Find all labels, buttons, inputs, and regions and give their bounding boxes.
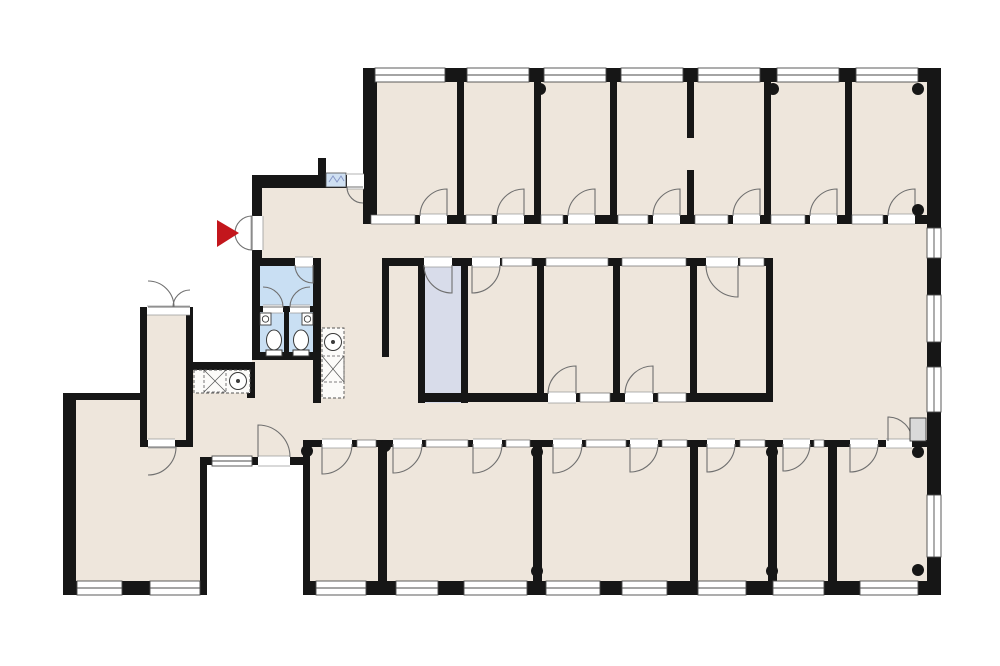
wall — [382, 262, 389, 357]
wall — [63, 393, 76, 595]
door-threshold — [810, 214, 837, 224]
door-threshold — [473, 439, 502, 448]
wall — [610, 82, 617, 215]
floor-bottom-rooms — [303, 440, 941, 595]
wall — [303, 440, 310, 581]
toilet-icon — [267, 330, 282, 350]
door-threshold — [258, 456, 290, 466]
wall — [418, 262, 425, 403]
floor-storage — [418, 262, 468, 403]
door-threshold — [630, 439, 658, 448]
column-dot — [912, 564, 924, 576]
wall — [461, 262, 468, 403]
interior-window — [426, 440, 468, 447]
wall — [764, 82, 771, 215]
floor-plan-svg — [0, 0, 1000, 666]
counter-sink-drain — [331, 340, 335, 344]
column-dot — [912, 83, 924, 95]
interior-window — [580, 393, 610, 402]
wall — [828, 447, 837, 581]
wall — [318, 158, 326, 175]
column-dot — [531, 565, 543, 577]
toilet-icon — [266, 350, 282, 356]
interior-window — [814, 440, 824, 447]
interior-window — [740, 440, 765, 447]
column-dot — [301, 445, 313, 457]
interior-window — [740, 258, 764, 266]
door-threshold — [625, 392, 653, 403]
interior-window — [662, 440, 687, 447]
door-threshold — [733, 214, 760, 224]
interior-window — [618, 215, 648, 224]
wall — [613, 266, 620, 393]
door-threshold — [553, 439, 582, 448]
wall — [252, 262, 260, 360]
door-threshold — [850, 439, 878, 448]
exit-mat — [910, 418, 926, 441]
door-threshold — [295, 257, 313, 267]
column-dot — [766, 565, 778, 577]
door-threshold — [251, 216, 263, 250]
wall — [284, 312, 289, 352]
wall — [193, 362, 255, 370]
wall — [690, 266, 697, 393]
column-dot — [912, 446, 924, 458]
wall — [766, 262, 773, 402]
wall — [533, 447, 542, 581]
column-dot — [531, 446, 543, 458]
door-threshold — [497, 214, 524, 224]
interior-window — [546, 258, 608, 266]
column-dot — [767, 83, 779, 95]
interior-window — [371, 215, 415, 224]
wall — [690, 447, 698, 581]
door-threshold — [888, 214, 915, 224]
interior-window — [852, 215, 883, 224]
door-threshold — [568, 214, 595, 224]
door-threshold — [322, 439, 352, 448]
interior-window — [502, 258, 532, 266]
wall — [768, 447, 777, 581]
wall — [537, 266, 544, 393]
interior-window — [506, 440, 530, 447]
toilet-icon — [294, 330, 309, 350]
wall — [140, 307, 147, 447]
interior-window — [541, 215, 563, 224]
interior-window — [357, 440, 376, 447]
door-threshold — [886, 439, 912, 448]
interior-window — [466, 215, 492, 224]
sink-icon — [260, 313, 271, 325]
door-threshold — [472, 257, 500, 267]
door-threshold — [393, 439, 422, 448]
door-threshold — [290, 305, 310, 313]
wall — [378, 447, 387, 581]
wall — [186, 307, 193, 447]
column-dot — [766, 446, 778, 458]
wall — [313, 258, 321, 403]
wall — [534, 82, 541, 215]
column-dot — [912, 204, 924, 216]
floor-big-room — [63, 393, 207, 595]
column-dot — [534, 83, 546, 95]
wall — [687, 82, 694, 138]
wall — [252, 352, 321, 360]
door-threshold — [653, 214, 680, 224]
floor-plan — [0, 0, 1000, 666]
door-threshold — [707, 439, 735, 448]
column-dot — [379, 440, 391, 452]
door-threshold — [424, 257, 452, 267]
counter-sink-drain — [236, 379, 240, 383]
wall — [363, 82, 377, 215]
interior-window — [771, 215, 805, 224]
column-dot — [64, 443, 76, 455]
wall — [845, 82, 852, 215]
door-threshold — [548, 392, 576, 403]
door-threshold — [706, 257, 738, 267]
wall — [687, 170, 694, 215]
door-threshold — [263, 305, 283, 313]
column-dot — [64, 565, 76, 577]
interior-window — [586, 440, 626, 447]
interior-window — [658, 393, 686, 402]
toilet-icon — [293, 350, 309, 356]
wall — [457, 82, 464, 215]
sink-icon — [302, 313, 313, 325]
wall — [200, 457, 207, 581]
door-threshold — [420, 214, 447, 224]
interior-window — [695, 215, 728, 224]
door-threshold — [783, 439, 810, 448]
interior-window — [622, 258, 686, 266]
